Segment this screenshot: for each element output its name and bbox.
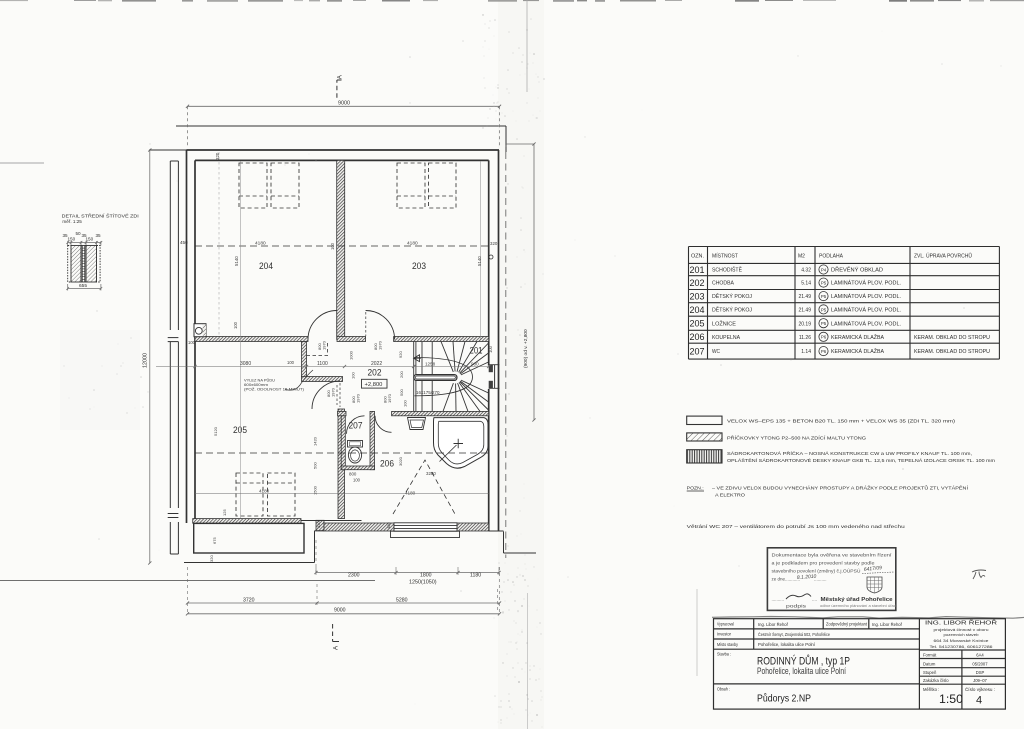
svg-text:201: 201 xyxy=(470,346,483,356)
svg-text:Datum: Datum xyxy=(923,662,936,667)
svg-text:LAMINÁTOVÁ PLOV. PODL.: LAMINÁTOVÁ PLOV. PODL. xyxy=(831,306,901,313)
svg-text:1970: 1970 xyxy=(356,393,361,403)
svg-text:CHODBA: CHODBA xyxy=(712,281,735,287)
svg-text:4.32: 4.32 xyxy=(801,268,811,274)
svg-text:5120: 5120 xyxy=(213,426,218,436)
svg-text:11.26: 11.26 xyxy=(799,335,811,341)
svg-text:J09–07: J09–07 xyxy=(973,678,987,683)
svg-text:LAMINÁTOVÁ PLOV. PODL.: LAMINÁTOVÁ PLOV. PODL. xyxy=(831,293,901,300)
svg-text:Čestmír Šemyt, Znojemská 502,: Čestmír Šemyt, Znojemská 502, Pohořelice xyxy=(758,631,830,637)
svg-text:P5: P5 xyxy=(821,294,827,299)
svg-text:2300: 2300 xyxy=(348,573,360,579)
svg-text:ING. LIBOR ŘEHOŘ: ING. LIBOR ŘEHOŘ xyxy=(925,619,998,627)
svg-text:Půdorys 2.NP: Půdorys 2.NP xyxy=(757,693,811,705)
svg-text:M2: M2 xyxy=(798,254,805,260)
svg-text:100: 100 xyxy=(188,340,196,345)
svg-text:Zakázka číslo: Zakázka číslo xyxy=(923,678,949,683)
svg-text:ze dne: ze dne xyxy=(772,577,786,582)
svg-text:206: 206 xyxy=(380,459,394,469)
svg-text:50: 50 xyxy=(76,231,82,236)
svg-text:6A4: 6A4 xyxy=(976,652,984,657)
svg-text:4180: 4180 xyxy=(405,491,416,496)
svg-text:Dokumentace byla ověřena ve st: Dokumentace byla ověřena ve stavebním ří… xyxy=(772,553,893,558)
svg-text:odbor územního plánování a sta: odbor územního plánování a stavební úřad xyxy=(820,603,896,608)
svg-text:675: 675 xyxy=(212,537,217,544)
svg-text:P5: P5 xyxy=(821,280,827,285)
svg-text:..........: .......... xyxy=(814,577,827,582)
svg-text:1258: 1258 xyxy=(425,362,436,367)
svg-text:100: 100 xyxy=(488,345,493,353)
svg-text:320: 320 xyxy=(490,241,498,246)
svg-text:450: 450 xyxy=(180,240,188,245)
svg-text:655: 655 xyxy=(79,283,87,289)
svg-text:2022: 2022 xyxy=(371,361,382,367)
svg-text:664 34 Moravské Knínice: 664 34 Moravské Knínice xyxy=(934,638,990,643)
svg-text:LAMINÁTOVÁ PLOV. PODL.: LAMINÁTOVÁ PLOV. PODL. xyxy=(831,320,901,327)
svg-text:35: 35 xyxy=(96,233,102,238)
svg-text:203: 203 xyxy=(412,261,426,271)
svg-text:206: 206 xyxy=(690,332,705,342)
svg-text:205: 205 xyxy=(233,425,247,435)
svg-text:1.14: 1.14 xyxy=(801,349,811,355)
svg-text:DŘEVĚNÝ OBKLAD: DŘEVĚNÝ OBKLAD xyxy=(831,266,883,274)
svg-text:202: 202 xyxy=(368,368,382,378)
svg-text:5.14: 5.14 xyxy=(801,281,811,287)
svg-text:stavebního povolení (změny) č.: stavebního povolení (změny) č.j.OÚPSÚ xyxy=(772,568,861,574)
svg-text:Ing. Libor Řehoř: Ing. Libor Řehoř xyxy=(872,620,902,627)
svg-text:100: 100 xyxy=(287,360,295,365)
svg-text:204: 204 xyxy=(690,305,705,315)
svg-text:320: 320 xyxy=(316,521,321,528)
svg-text:VELOX WS–EPS 135 + BETON B20 T: VELOX WS–EPS 135 + BETON B20 TL. 150 mm … xyxy=(727,419,955,425)
svg-text:21.49: 21.49 xyxy=(798,294,811,300)
svg-text:Obsah :: Obsah : xyxy=(717,687,730,692)
svg-text:Zodpovědný projektant: Zodpovědný projektant xyxy=(826,622,868,627)
svg-text:480: 480 xyxy=(386,522,391,529)
svg-text:1800: 1800 xyxy=(420,573,432,579)
svg-text:4: 4 xyxy=(976,695,982,707)
svg-text:(900) od v. +2,800: (900) od v. +2,800 xyxy=(523,329,529,368)
svg-text:Formát: Formát xyxy=(923,652,937,657)
svg-text:Tel. 541230786, 606127286: Tel. 541230786, 606127286 xyxy=(930,644,994,649)
svg-text:100: 100 xyxy=(353,478,361,483)
svg-text:100: 100 xyxy=(351,372,356,379)
svg-text:Stupeň: Stupeň xyxy=(923,670,937,675)
svg-text:Investor: Investor xyxy=(717,632,732,637)
svg-text:KERAMICKÁ DLAŽBA: KERAMICKÁ DLAŽBA xyxy=(831,347,885,355)
svg-text:100: 100 xyxy=(233,321,238,329)
svg-text:320: 320 xyxy=(209,555,214,562)
svg-text:PODLAHA: PODLAHA xyxy=(819,254,844,260)
svg-text:P5: P5 xyxy=(821,321,827,326)
svg-text:KOUPELNA: KOUPELNA xyxy=(712,335,741,341)
svg-text:204: 204 xyxy=(259,261,273,271)
svg-text:200: 200 xyxy=(399,371,404,378)
svg-text:3720: 3720 xyxy=(243,597,255,603)
svg-text:920: 920 xyxy=(398,351,403,358)
svg-text:20.19: 20.19 xyxy=(798,321,811,327)
svg-text:800: 800 xyxy=(349,472,357,477)
svg-text:1250(1050): 1250(1050) xyxy=(409,580,437,586)
svg-text:DSP: DSP xyxy=(976,670,985,675)
svg-text:....: .... xyxy=(812,597,817,602)
svg-text:4180: 4180 xyxy=(407,241,418,247)
svg-text:DĚTSKÝ POKOJ: DĚTSKÝ POKOJ xyxy=(712,305,753,313)
svg-text:POZN.:: POZN.: xyxy=(687,486,704,492)
svg-text:1100: 1100 xyxy=(317,361,328,367)
svg-text:500: 500 xyxy=(313,462,318,469)
svg-text:05/2007: 05/2007 xyxy=(972,662,988,667)
svg-text:125: 125 xyxy=(222,509,227,516)
svg-text:1970: 1970 xyxy=(322,340,327,350)
svg-text:Místo stavby: Místo stavby xyxy=(717,642,739,647)
svg-text:5280: 5280 xyxy=(396,597,408,603)
svg-text:A ELEKTRO: A ELEKTRO xyxy=(715,493,745,499)
svg-text:P6: P6 xyxy=(821,349,827,354)
svg-text:LAMINÁTOVÁ PLOV. PODL.: LAMINÁTOVÁ PLOV. PODL. xyxy=(831,280,901,287)
svg-text:KERAMICKÁ DLAŽBA: KERAMICKÁ DLAŽBA xyxy=(831,333,885,341)
svg-text:207: 207 xyxy=(690,347,705,357)
svg-text:12000: 12000 xyxy=(143,353,149,368)
svg-text:Měřítko :: Měřítko : xyxy=(923,687,939,692)
svg-text:16x175/270: 16x175/270 xyxy=(416,390,440,395)
svg-text:..........: .......... xyxy=(772,597,785,602)
svg-text:Stavba :: Stavba : xyxy=(717,652,731,657)
svg-text:Větrání WC 207 – ventilátorem: Větrání WC 207 – ventilátorem do potrubí… xyxy=(687,524,905,530)
svg-text:201: 201 xyxy=(690,265,705,275)
svg-text:Pohořelice, lokalita ulice Pol: Pohořelice, lokalita ulice Polní xyxy=(758,642,816,647)
svg-text:KERAM. OBKLAD DO STROPU: KERAM. OBKLAD DO STROPU xyxy=(914,335,990,341)
svg-text:1000: 1000 xyxy=(349,350,354,360)
svg-text:207: 207 xyxy=(349,421,363,431)
svg-text:LOŽNICE: LOŽNICE xyxy=(712,319,737,327)
svg-text:9000: 9000 xyxy=(334,608,346,614)
svg-text:900: 900 xyxy=(471,362,479,367)
svg-text:Číslo výkresu :: Číslo výkresu : xyxy=(965,687,995,692)
svg-text:9000: 9000 xyxy=(338,101,350,107)
svg-text:205: 205 xyxy=(690,319,705,329)
svg-text:+2,800: +2,800 xyxy=(365,382,383,388)
svg-text:1180: 1180 xyxy=(470,573,481,579)
svg-text:5140: 5140 xyxy=(234,256,239,266)
svg-text:320: 320 xyxy=(215,152,220,160)
svg-text:1420: 1420 xyxy=(313,436,318,446)
svg-text:1970: 1970 xyxy=(387,393,392,403)
svg-text:100: 100 xyxy=(403,400,408,407)
svg-text:pozemních staveb: pozemních staveb xyxy=(944,632,980,637)
svg-text:DETAIL STŘEDNÍ ŠTÍTOVÉ ZDI: DETAIL STŘEDNÍ ŠTÍTOVÉ ZDI xyxy=(62,212,139,219)
svg-text:3080: 3080 xyxy=(240,361,251,367)
svg-text:měř. 1:25: měř. 1:25 xyxy=(62,219,82,224)
svg-text:1970: 1970 xyxy=(331,387,336,397)
svg-text:DĚTSKÝ POKOJ: DĚTSKÝ POKOJ xyxy=(712,292,753,300)
svg-text:P4: P4 xyxy=(821,267,827,272)
svg-text:4180: 4180 xyxy=(255,241,266,247)
svg-text:SCHODIŠTĚ: SCHODIŠTĚ xyxy=(712,266,743,274)
svg-text:21.49: 21.49 xyxy=(798,307,811,313)
svg-text:WC: WC xyxy=(712,349,720,355)
svg-text:500: 500 xyxy=(399,389,404,396)
svg-text:202: 202 xyxy=(690,278,705,288)
svg-text:P5: P5 xyxy=(821,307,827,312)
svg-text:1970: 1970 xyxy=(378,340,383,350)
svg-text:OZN.: OZN. xyxy=(691,254,704,260)
svg-text:100: 100 xyxy=(330,242,335,250)
svg-text:ZVL. ÚPRAVA POVRCHŮ: ZVL. ÚPRAVA POVRCHŮ xyxy=(914,253,972,260)
svg-text:1:50: 1:50 xyxy=(939,694,963,706)
svg-text:3280: 3280 xyxy=(426,471,436,476)
svg-text:Pohořelice, lokalita ulice Pol: Pohořelice, lokalita ulice Polní xyxy=(757,666,846,677)
svg-text:a je podkladem pro provedení s: a je podkladem pro provedení stavby podl… xyxy=(772,561,876,566)
svg-text:KERAM. OBKLAD DO STROPU: KERAM. OBKLAD DO STROPU xyxy=(914,349,990,355)
svg-text:150: 150 xyxy=(86,237,94,242)
svg-text:Ing. Libor Řehoř: Ing. Libor Řehoř xyxy=(758,620,788,627)
svg-text:P6: P6 xyxy=(821,335,827,340)
svg-text:203: 203 xyxy=(690,292,705,302)
svg-text:5140: 5140 xyxy=(477,256,482,266)
svg-text:podpis: podpis xyxy=(786,604,807,610)
svg-text:150: 150 xyxy=(68,237,76,242)
svg-text:4180: 4180 xyxy=(259,489,270,494)
svg-text:3020: 3020 xyxy=(398,456,403,466)
svg-text:MÍSTNOST: MÍSTNOST xyxy=(712,253,738,260)
